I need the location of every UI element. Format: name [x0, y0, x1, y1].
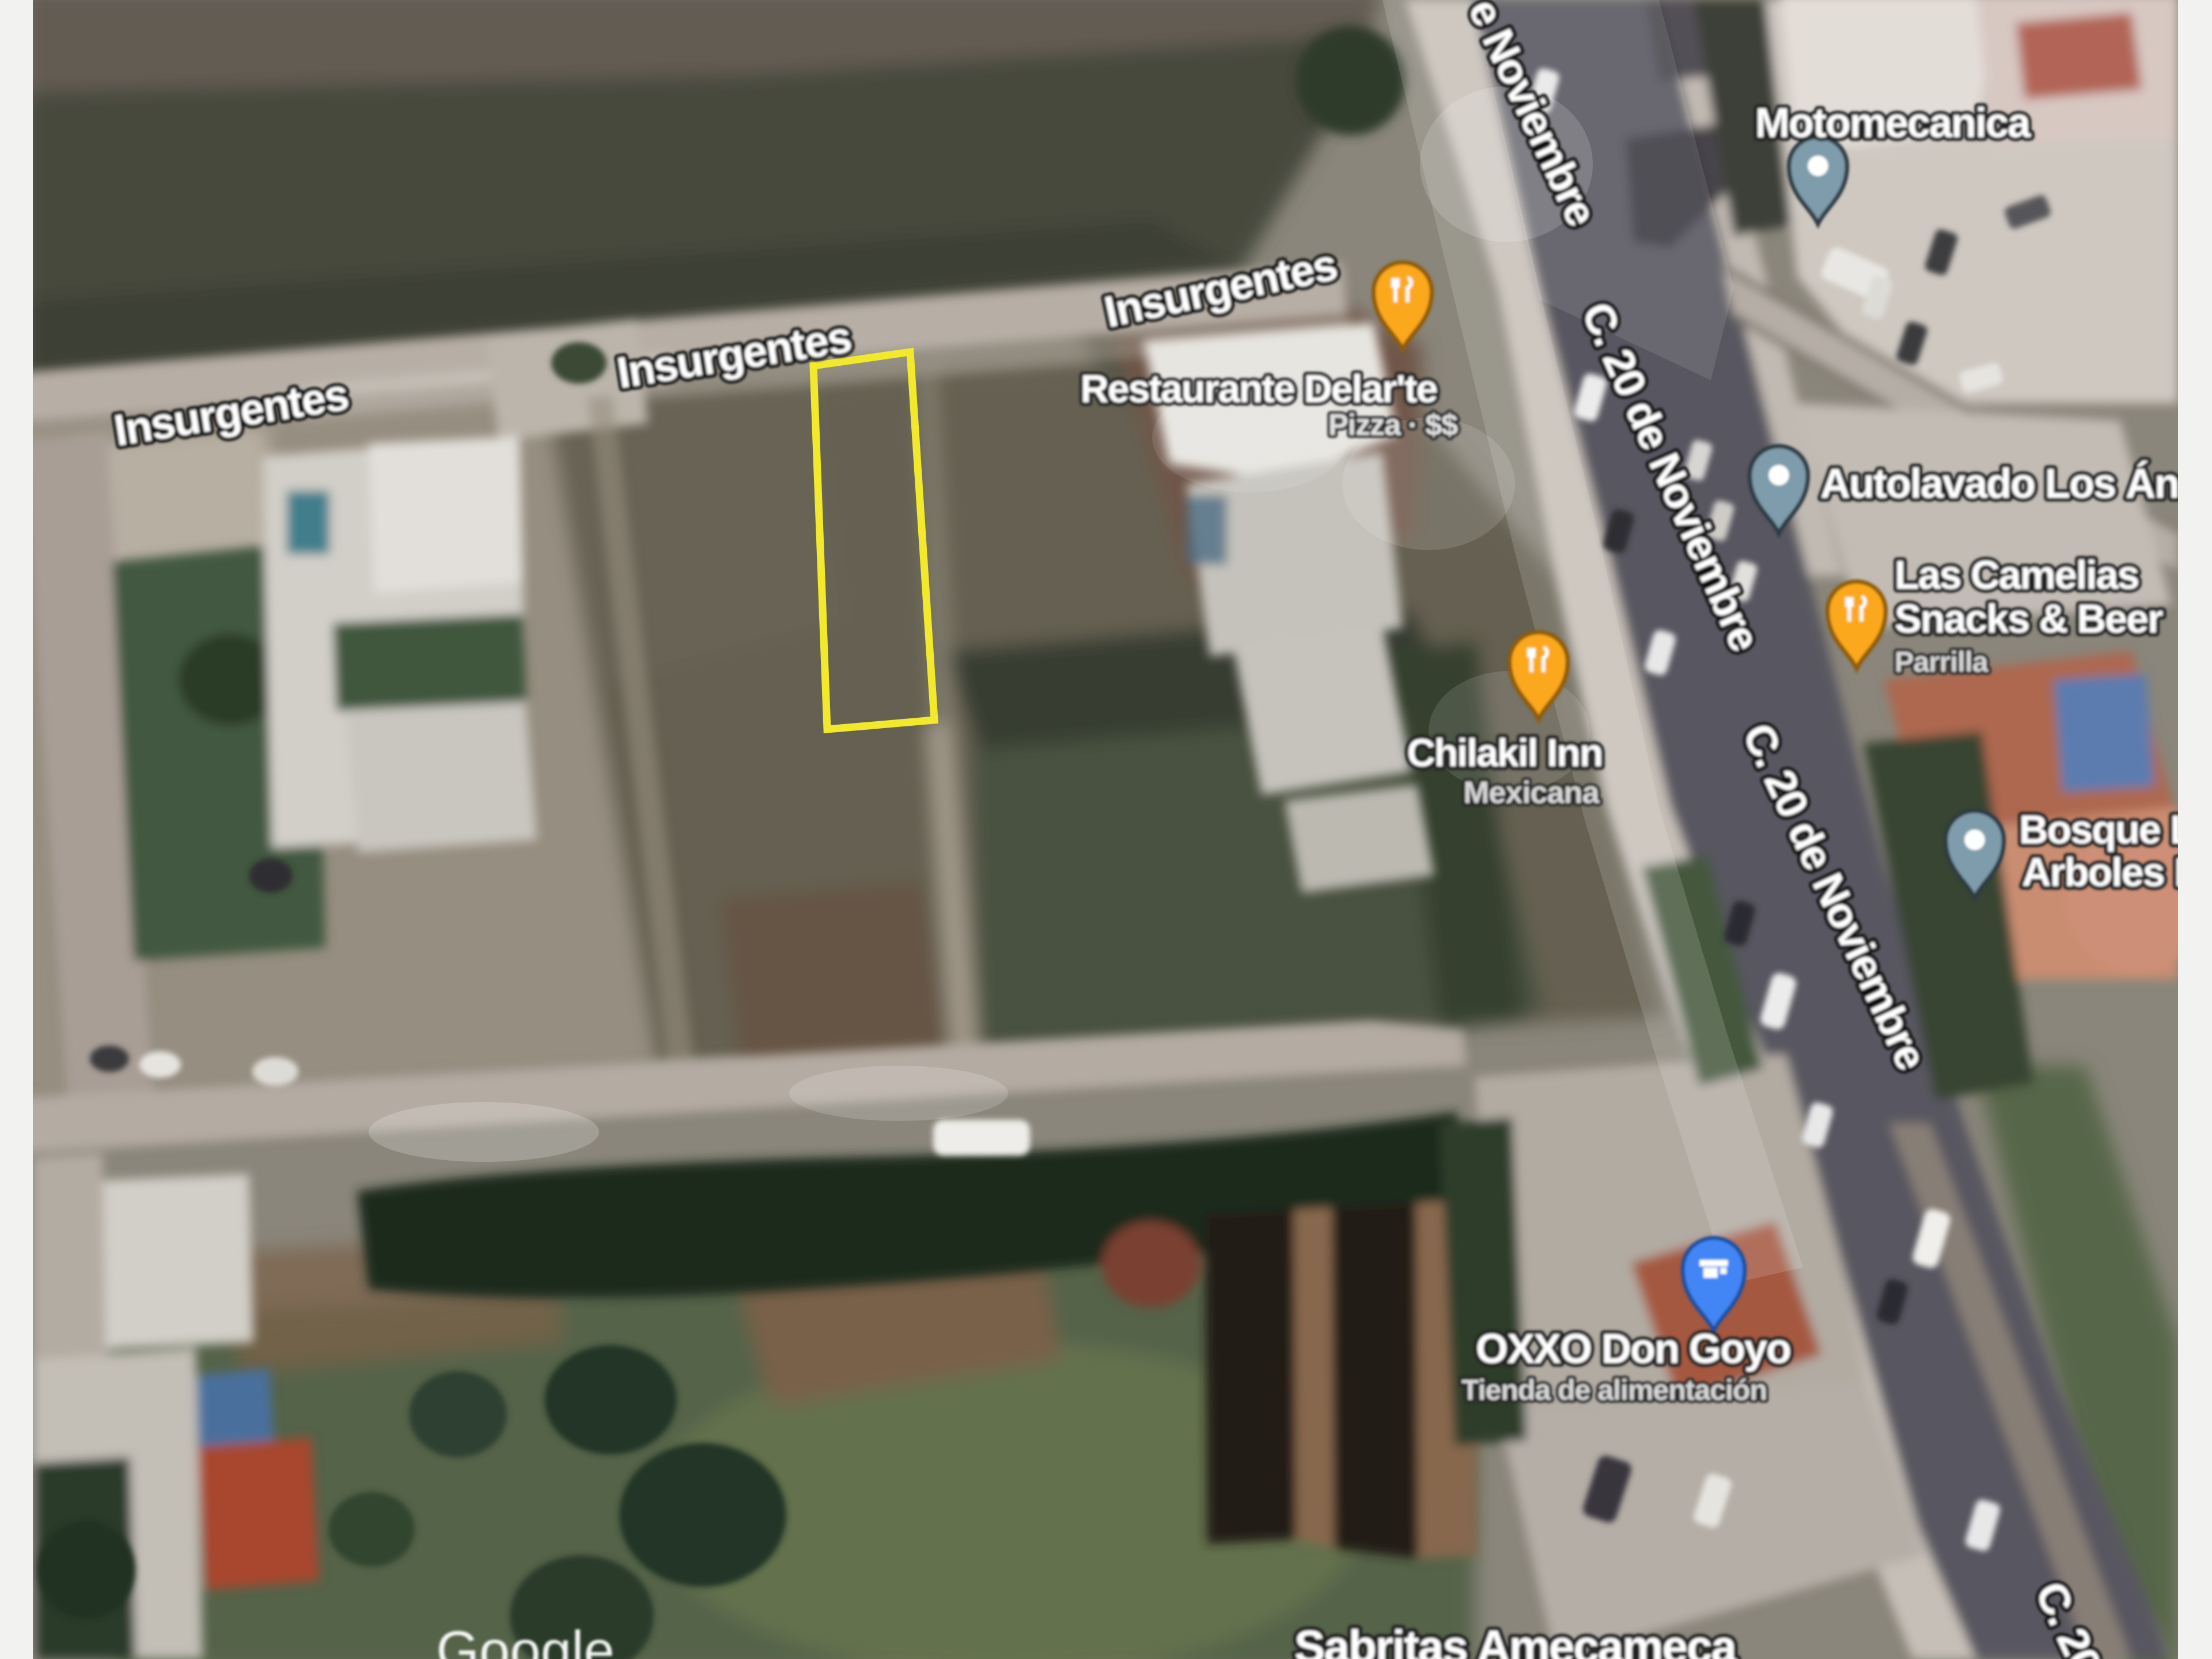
svg-text:Snacks & Beer: Snacks & Beer [1895, 596, 2163, 641]
svg-text:Parrilla: Parrilla [1895, 646, 1989, 678]
svg-text:Bosque L: Bosque L [2019, 807, 2194, 852]
svg-text:Tienda de alimentación: Tienda de alimentación [1461, 1374, 1767, 1406]
svg-text:Autolavado Los Án: Autolavado Los Án [1820, 461, 2179, 507]
svg-text:Mexicana: Mexicana [1463, 775, 1600, 810]
svg-text:OXXO Don Goyo: OXXO Don Goyo [1476, 1326, 1790, 1372]
svg-text:Restaurante Delar'te: Restaurante Delar'te [1081, 367, 1437, 411]
svg-text:Motomecanica: Motomecanica [1755, 100, 2031, 146]
svg-text:Las Camelias: Las Camelias [1895, 552, 2139, 597]
svg-text:Chilakil Inn: Chilakil Inn [1407, 731, 1603, 775]
svg-text:Sabritas Amecameca: Sabritas Amecameca [1294, 1621, 1737, 1659]
svg-text:Pizza · $$: Pizza · $$ [1328, 408, 1458, 442]
svg-text:Google: Google [436, 1620, 615, 1659]
svg-text:Arboles L: Arboles L [2022, 850, 2198, 895]
